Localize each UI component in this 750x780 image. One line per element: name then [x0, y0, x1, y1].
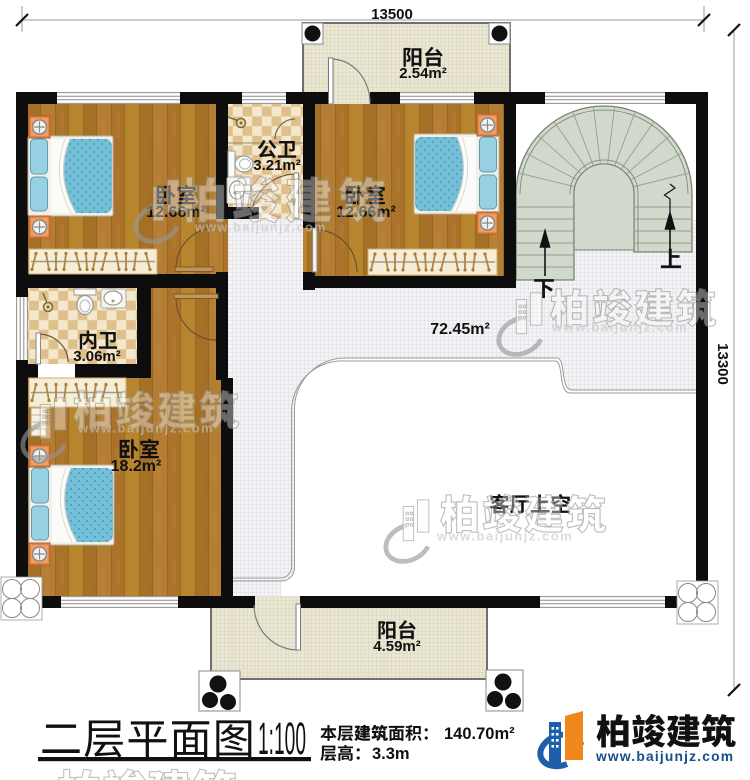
svg-text:13500: 13500	[371, 6, 413, 23]
svg-text:www.baijunjz.com: www.baijunjz.com	[194, 221, 327, 235]
svg-text:13300: 13300	[714, 343, 731, 385]
svg-text:3.3m: 3.3m	[372, 745, 410, 763]
svg-text:www.baijunjz.com: www.baijunjz.com	[77, 421, 214, 436]
svg-text:www.baijunjz.com: www.baijunjz.com	[595, 749, 734, 764]
svg-text:140.70m²: 140.70m²	[444, 725, 515, 743]
svg-text:www.baijunjz.com: www.baijunjz.com	[436, 529, 573, 544]
svg-text:1:100: 1:100	[258, 713, 306, 764]
svg-text:3.21m²: 3.21m²	[253, 157, 301, 174]
svg-text:3.06m²: 3.06m²	[73, 348, 121, 365]
svg-text:www.baijunjz.com: www.baijunjz.com	[551, 320, 688, 335]
svg-text:72.45m²: 72.45m²	[430, 321, 490, 338]
svg-text:4.59m²: 4.59m²	[373, 638, 421, 655]
svg-text:2.54m²: 2.54m²	[399, 65, 447, 82]
svg-text:18.2m²: 18.2m²	[111, 458, 162, 475]
